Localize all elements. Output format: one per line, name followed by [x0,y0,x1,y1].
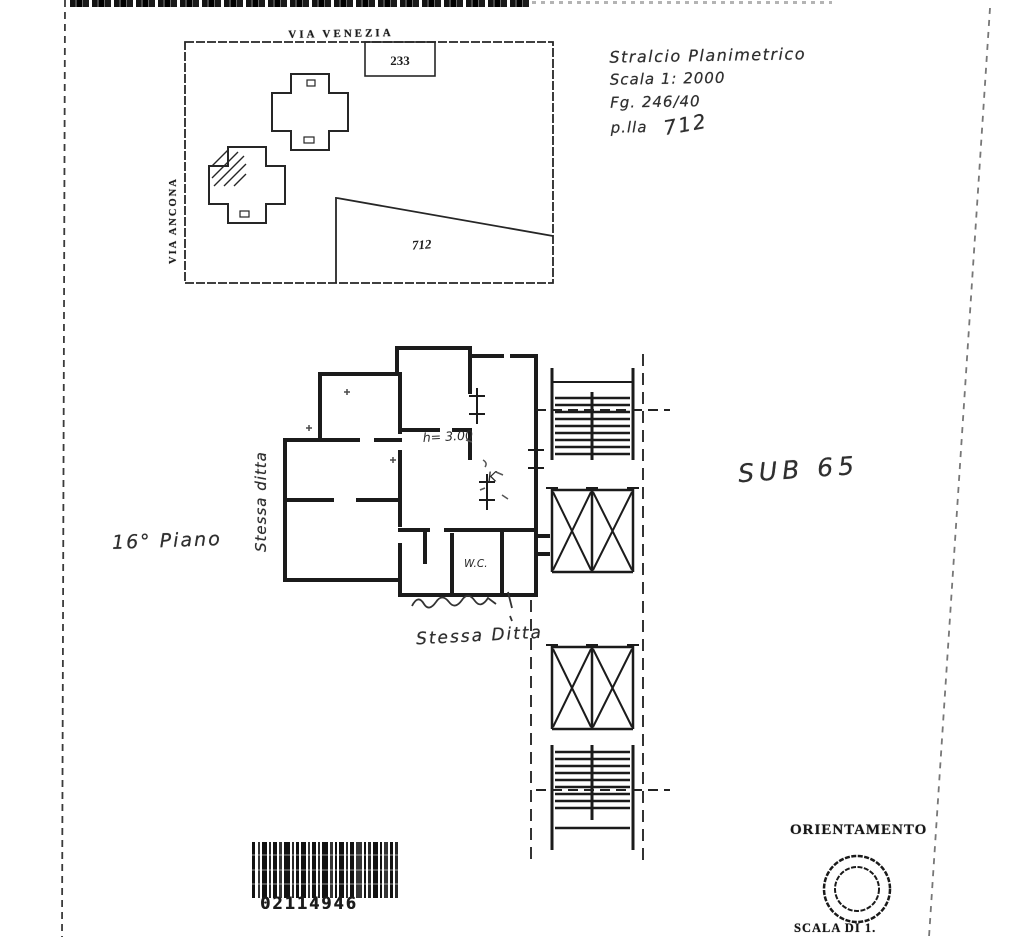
map-number-233: 233 [390,53,410,68]
particella-label: p.lla [610,118,647,137]
scanned-cadastral-plan-page: { "site_map": { "street_top_label": "VIA… [0,0,1035,937]
barcode-block: 02114946 [252,842,402,914]
cutoff-text-strip [70,0,532,7]
map-number-712: 712 [411,236,432,252]
note-line-particella: p.lla712 [610,111,807,139]
barcode-number: 02114946 [252,894,402,914]
compass-inner-circle [835,867,879,911]
note-line-foglio: Fg. 246/40 [610,88,807,114]
cutoff-dotted-line [532,1,832,4]
elevator-shaft-2 [546,645,639,729]
note-line-title: Stralcio Planimetrico [609,42,806,68]
note-line-scale: Scala 1: 2000 [610,65,807,91]
staircase-bottom [552,745,633,850]
compass-outer-circle [824,856,890,922]
window-symbols [469,388,544,510]
map-parcel-divider [336,197,553,283]
site-map-drawing: 233 712 [180,40,560,285]
room-k-label: K [487,469,499,486]
map-boundary [185,42,553,283]
street-label-via-ancona: VIA ANCONA [168,177,179,264]
wc-label: W.C. [464,558,488,570]
floor-label: 16° Piano [112,528,222,554]
floor-plan-drawing: h= 3.00 K W.C. [240,340,670,860]
orientamento-title: ORIENTAMENTO [790,822,925,839]
particella-value: 712 [662,110,710,140]
staircase-top [552,368,633,460]
scale-caption: SCALA DI 1. [794,921,876,936]
apartment-walls [285,348,548,595]
right-border-dashed-line [929,8,990,937]
height-label: h= 3.00 [422,427,473,445]
handwritten-header-note: Stralcio Planimetrico Scala 1: 2000 Fg. … [609,42,807,139]
street-label-via-venezia: VIA VENEZIA [276,27,406,41]
left-border-dashed-line [62,0,65,937]
barcode-stripes [252,842,398,898]
elevator-shaft-1 [546,488,639,572]
